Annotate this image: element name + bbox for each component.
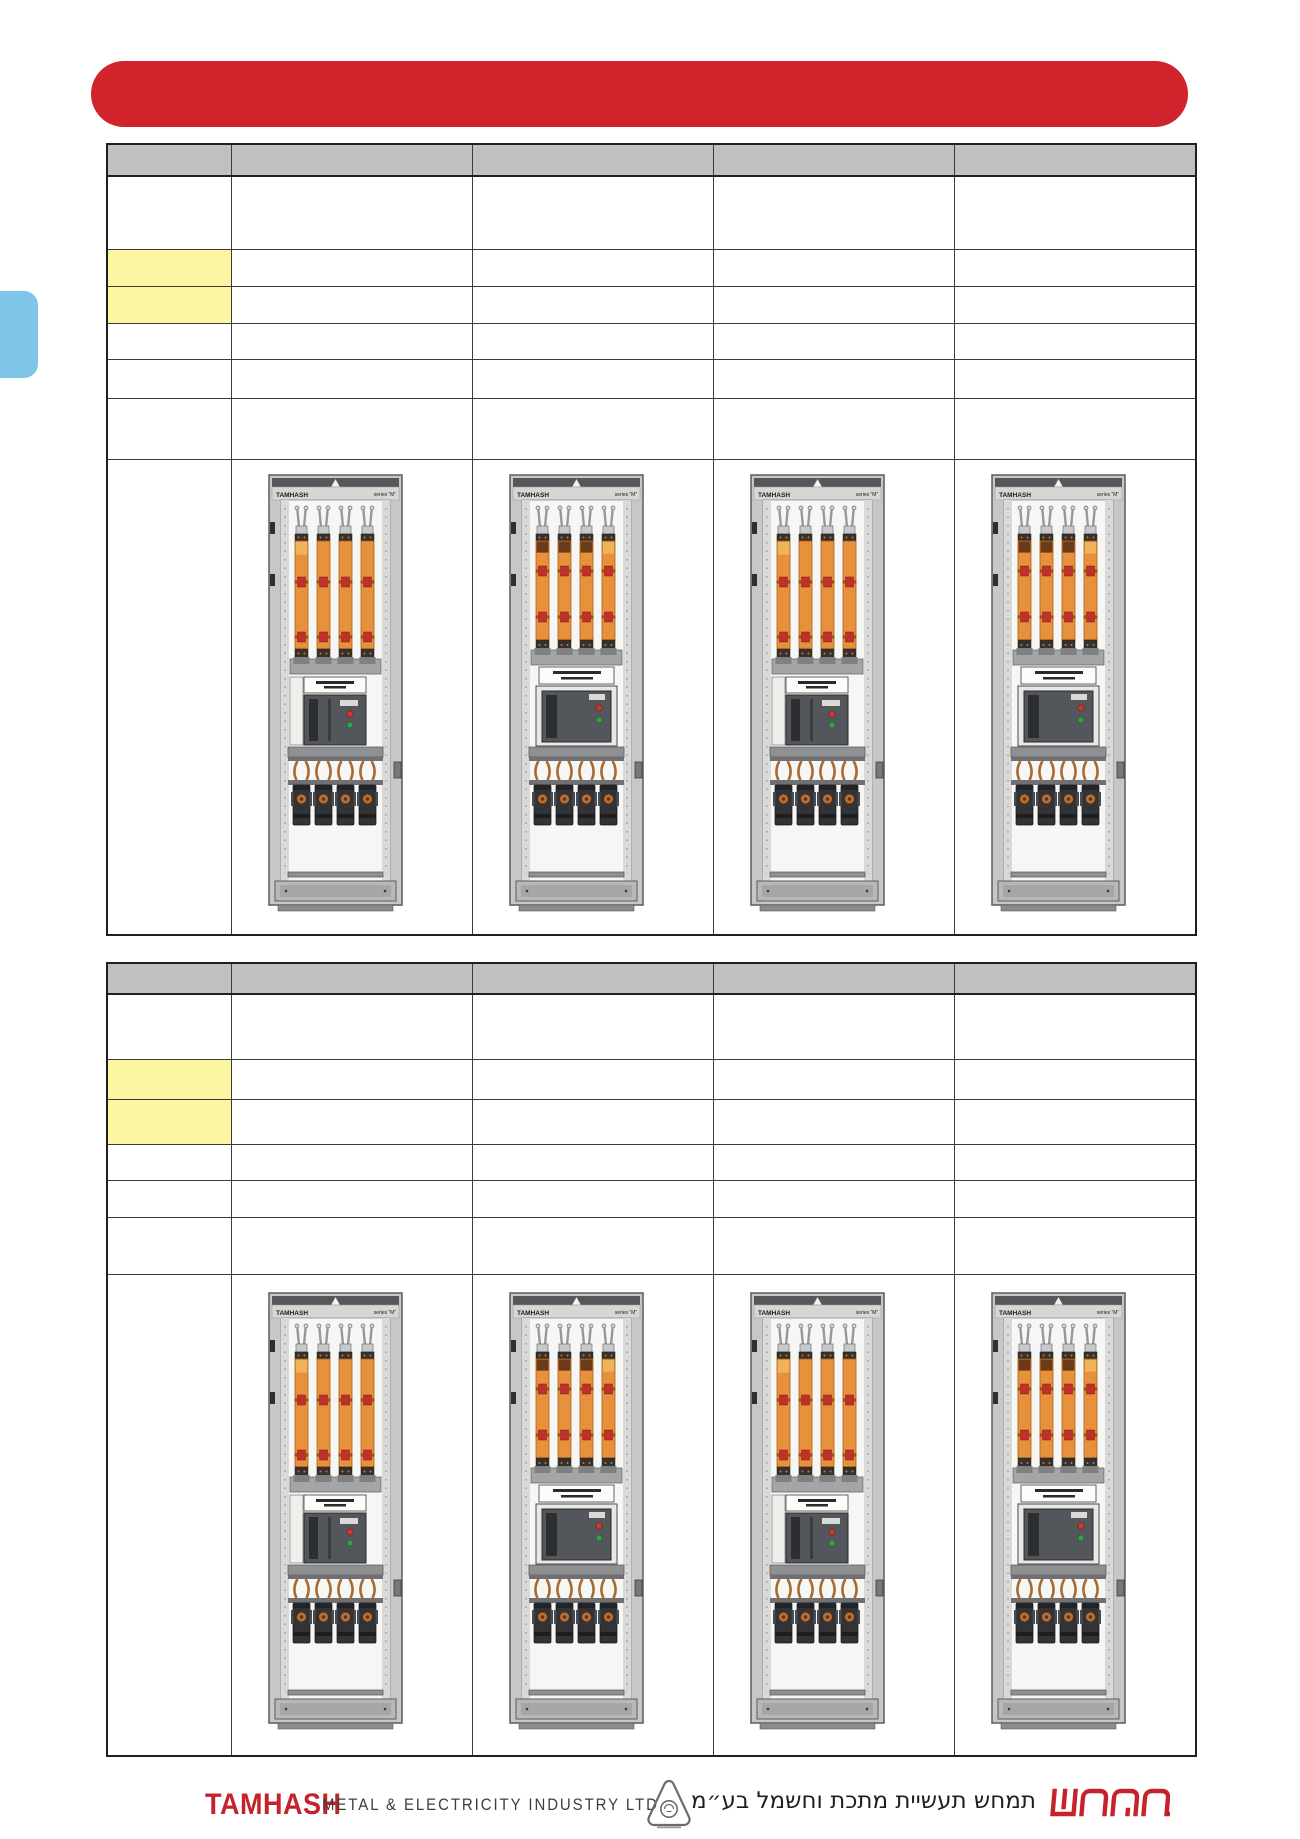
table-cell (713, 176, 954, 249)
spec-table-1 (106, 143, 1197, 936)
cabinet-fixed-breaker (268, 1292, 403, 1732)
table-cell (231, 249, 472, 286)
row-label-cell (107, 323, 231, 359)
table-cell (954, 1180, 1196, 1217)
standards-institute-icon (644, 1778, 694, 1830)
cabinet-fixed-breaker (750, 474, 885, 914)
table-cell (231, 1059, 472, 1099)
row-label-cell (107, 359, 231, 398)
image-cell (231, 459, 472, 935)
footer: TAMHASH METAL & ELECTRICITY INDUSTRY LTD… (0, 1778, 1300, 1832)
table-row (107, 1217, 1196, 1274)
table-cell (472, 249, 713, 286)
table-cell (472, 323, 713, 359)
row-label-cell (107, 1217, 231, 1274)
table-cell (231, 1217, 472, 1274)
highlight-cell (107, 286, 231, 323)
image-cell (713, 1274, 954, 1756)
company-name-english: METAL & ELECTRICITY INDUSTRY LTD (322, 1795, 659, 1815)
page-edge-tab (0, 291, 38, 378)
table-row (107, 176, 1196, 249)
table-cell (713, 1099, 954, 1144)
table-row (107, 249, 1196, 286)
header-cell (231, 144, 472, 176)
table-cell (713, 994, 954, 1059)
table-row (107, 359, 1196, 398)
table-cell (231, 1099, 472, 1144)
highlight-cell (107, 1059, 231, 1099)
table-cell (472, 994, 713, 1059)
row-label-cell (107, 994, 231, 1059)
table-row (107, 1144, 1196, 1180)
tamhash-logo: TAMHASH (205, 1788, 341, 1821)
cabinet-fixed-breaker (750, 1292, 885, 1732)
table-row (107, 1180, 1196, 1217)
highlight-cell (107, 249, 231, 286)
table-cell (954, 176, 1196, 249)
table-cell (472, 1217, 713, 1274)
table-cell (713, 286, 954, 323)
header-cell (472, 144, 713, 176)
table-cell (472, 1144, 713, 1180)
table-cell (472, 1180, 713, 1217)
table-cell (954, 1059, 1196, 1099)
header-cell (107, 963, 231, 994)
table-cell (954, 1217, 1196, 1274)
cabinet-withdrawable-breaker (509, 1292, 644, 1732)
table-cell (954, 359, 1196, 398)
image-cell (472, 1274, 713, 1756)
title-banner (91, 61, 1188, 127)
table-cell (713, 1144, 954, 1180)
table-cell (472, 1099, 713, 1144)
table-cell (472, 176, 713, 249)
table-cell (472, 286, 713, 323)
header-cell (472, 963, 713, 994)
cabinet-withdrawable-breaker (991, 474, 1126, 914)
table-cell (231, 1144, 472, 1180)
table-cell (954, 398, 1196, 459)
table-cell (231, 323, 472, 359)
table-cell (713, 1180, 954, 1217)
row-label-cell (107, 1274, 231, 1756)
table-cell (954, 323, 1196, 359)
image-cell (472, 459, 713, 935)
table-cell (713, 398, 954, 459)
header-cell (107, 144, 231, 176)
table-cell (954, 994, 1196, 1059)
table-cell (954, 1099, 1196, 1144)
header-cell (231, 963, 472, 994)
table-cell (713, 323, 954, 359)
header-cell (713, 963, 954, 994)
header-cell (954, 963, 1196, 994)
header-cell (954, 144, 1196, 176)
row-label-cell (107, 1180, 231, 1217)
table-cell (713, 1217, 954, 1274)
table-cell (231, 286, 472, 323)
table-cell (713, 249, 954, 286)
cabinet-withdrawable-breaker (991, 1292, 1126, 1732)
highlight-cell (107, 1099, 231, 1144)
image-cell (713, 459, 954, 935)
image-cell (231, 1274, 472, 1756)
table-cell (231, 359, 472, 398)
table-row (107, 1059, 1196, 1099)
row-label-cell (107, 1144, 231, 1180)
table-cell (954, 1144, 1196, 1180)
table-cell (954, 249, 1196, 286)
row-label-cell (107, 459, 231, 935)
cabinet-withdrawable-breaker (509, 474, 644, 914)
table-cell (472, 398, 713, 459)
table-cell (954, 286, 1196, 323)
table-row (107, 1099, 1196, 1144)
table-cell (472, 1059, 713, 1099)
table-cell (713, 359, 954, 398)
table-row (107, 963, 1196, 994)
tamhash-hebrew-logo (1048, 1786, 1170, 1820)
image-cell (954, 1274, 1196, 1756)
cabinet-fixed-breaker (268, 474, 403, 914)
table-cell (713, 1059, 954, 1099)
company-name-hebrew: תמחש תעשיית מתכת וחשמל בע״מ (691, 1788, 1036, 1814)
table-cell (231, 1180, 472, 1217)
table-row (107, 323, 1196, 359)
table-cell (231, 398, 472, 459)
spec-table-2 (106, 962, 1197, 1757)
table-row (107, 459, 1196, 935)
table-row (107, 144, 1196, 176)
table-row (107, 398, 1196, 459)
header-cell (713, 144, 954, 176)
image-cell (954, 459, 1196, 935)
table-row (107, 286, 1196, 323)
row-label-cell (107, 176, 231, 249)
table-row (107, 994, 1196, 1059)
table-cell (231, 994, 472, 1059)
row-label-cell (107, 398, 231, 459)
table-cell (231, 176, 472, 249)
table-row (107, 1274, 1196, 1756)
table-cell (472, 359, 713, 398)
